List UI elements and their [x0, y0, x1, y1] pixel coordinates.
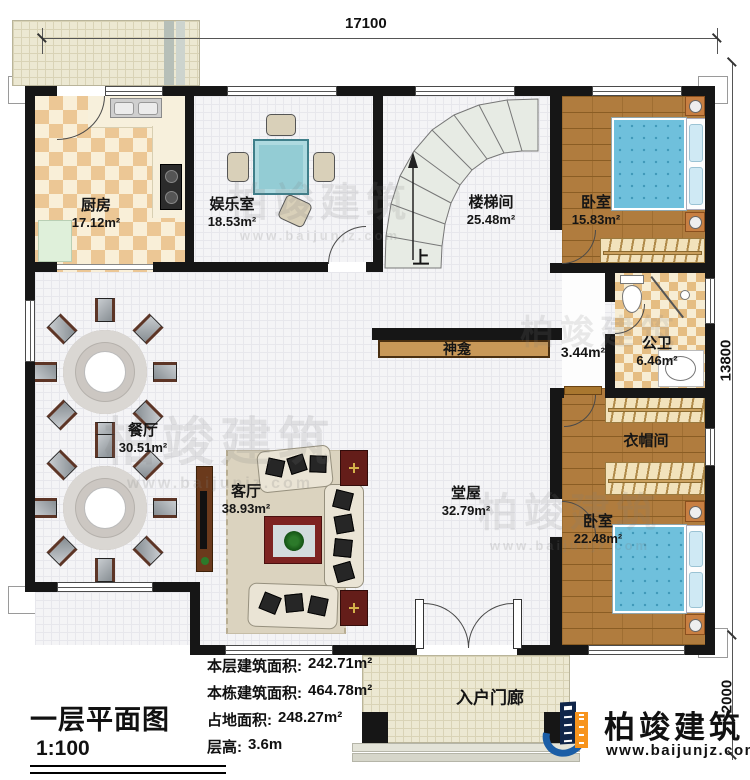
bed: [612, 118, 686, 210]
room-corridor-floor: [562, 273, 605, 388]
sink-basin: [114, 102, 134, 115]
dining-table: [63, 466, 147, 550]
terrace-strip: [164, 21, 174, 85]
side-table: [340, 450, 368, 486]
wall: [605, 334, 615, 390]
recreation-label: 娱乐室 18.53m²: [208, 193, 256, 229]
pillow: [689, 124, 703, 162]
shrine-label: 神龛: [443, 339, 471, 359]
door-opening: [57, 86, 105, 96]
stairwell-label: 楼梯间 25.48m²: [467, 191, 515, 227]
drawing-scale: 1:100: [36, 737, 90, 760]
room-name: 卧室: [574, 510, 622, 531]
nightstand: [685, 212, 705, 232]
dining-table: [63, 330, 147, 414]
bathroom-label: 公卫 6.46m²: [636, 332, 677, 368]
room-name: 入户门廊: [456, 684, 524, 709]
sofa: [324, 484, 364, 588]
room-name: 堂屋: [442, 482, 490, 503]
sofa-cushion: [333, 561, 355, 583]
sofa-cushion: [284, 593, 304, 613]
window: [225, 645, 333, 655]
room-name: 卧室: [572, 191, 620, 212]
sofa-cushion: [333, 538, 353, 558]
tv: [200, 491, 207, 549]
room-area: 3.44m²: [561, 344, 605, 360]
stat-footprint: 占地面积: 248.27m²: [207, 709, 372, 730]
wall: [550, 537, 562, 645]
logo-icon: [542, 700, 600, 760]
wall: [185, 262, 328, 272]
burner: [165, 170, 178, 183]
side-table: [340, 590, 368, 626]
wardrobe: [600, 238, 705, 263]
page-title: 一层平面图: [30, 705, 170, 735]
room-name: 厨房: [72, 194, 120, 215]
window: [57, 582, 153, 592]
sofa-cushion: [286, 454, 307, 475]
stat-building-area: 本栋建筑面积: 464.78m²: [207, 682, 372, 703]
window: [227, 86, 337, 96]
room-area: 22.48m²: [574, 531, 622, 546]
room-area: 15.83m²: [572, 212, 620, 227]
plant: [284, 531, 304, 551]
bed-headboard: [686, 118, 706, 210]
dining-label: 餐厅 30.51m²: [119, 419, 167, 455]
room-name: 娱乐室: [208, 193, 256, 214]
cloakroom-label: 衣帽间: [623, 430, 668, 451]
chair: [95, 558, 115, 582]
room-area: 30.51m²: [119, 440, 167, 455]
nightstand: [685, 614, 705, 635]
stat-label: 本层建筑面积:: [207, 655, 302, 676]
brand-logo: 柏竣建筑 www.baijunjz.com: [542, 700, 742, 764]
room-area: 32.79m²: [442, 503, 490, 518]
shower-head: [680, 290, 690, 300]
room-area: 6.46m²: [636, 353, 677, 368]
stat-label: 层高:: [207, 736, 242, 757]
pillow: [689, 572, 703, 608]
brand-name: 柏竣建筑: [604, 702, 744, 747]
wall: [550, 263, 612, 273]
floor-plan: 柏竣建筑 www.baijunjz.com 柏竣建筑 www.baijunjz.…: [0, 0, 750, 780]
direction-text: 上: [413, 244, 430, 269]
wall: [605, 273, 615, 302]
bedroom1-label: 卧室 15.83m²: [572, 191, 620, 227]
dimension-line: [42, 38, 718, 39]
living-label: 客厅 38.93m²: [222, 480, 270, 516]
wall: [185, 96, 194, 272]
wall-opening: [57, 264, 153, 270]
nightstand: [685, 501, 705, 522]
sofa-cushion: [309, 455, 327, 473]
stat-value: 464.78m²: [308, 682, 372, 703]
stat-height: 层高: 3.6m: [207, 736, 372, 757]
window: [25, 300, 35, 362]
staircase: [383, 96, 550, 272]
room-name: 神龛: [443, 339, 471, 359]
stat-value: 248.27m²: [278, 709, 342, 730]
room-name: 楼梯间: [467, 191, 515, 212]
sofa-cushion: [258, 591, 281, 614]
stair-up-label: 上: [413, 244, 430, 269]
window: [105, 86, 163, 96]
wall: [550, 388, 562, 499]
room-area: 17.12m²: [72, 215, 120, 230]
sofa-cushion: [332, 489, 354, 511]
terrace-strip: [176, 21, 185, 85]
room-name: 衣帽间: [623, 430, 668, 451]
chair: [227, 152, 249, 182]
logo-building-dark: [560, 701, 576, 744]
stat-value: 242.71m²: [308, 655, 372, 676]
pillow: [689, 531, 703, 567]
stove: [160, 164, 182, 210]
hall-label: 堂屋 32.79m²: [442, 482, 490, 518]
wall: [375, 645, 417, 655]
logo-building-orange: [575, 712, 588, 748]
window: [705, 428, 715, 466]
fridge: [38, 220, 72, 262]
bed-headboard: [686, 525, 706, 613]
stat-floor-area: 本层建筑面积: 242.71m²: [207, 655, 372, 676]
burner: [165, 191, 178, 204]
kitchen-label: 厨房 17.12m²: [72, 194, 120, 230]
coffee-table: [264, 516, 322, 564]
wall: [373, 96, 383, 272]
wall: [612, 263, 715, 273]
door-leaf: [564, 386, 602, 395]
wall: [153, 262, 185, 272]
wall: [35, 262, 57, 272]
pillow: [689, 167, 703, 205]
wardrobe: [605, 462, 705, 495]
plant: [201, 557, 209, 565]
chair: [33, 362, 57, 382]
window: [705, 278, 715, 324]
room-name: 公卫: [636, 332, 677, 353]
title-underline: [30, 765, 226, 774]
sofa-cushion: [307, 595, 328, 616]
dimension-ext: [717, 28, 718, 54]
chair: [33, 498, 57, 518]
wall: [705, 96, 715, 655]
dimension-ext: [42, 28, 43, 54]
dimension-top: 17100: [345, 15, 387, 32]
stat-label: 本栋建筑面积:: [207, 682, 302, 703]
stats-block: 本层建筑面积: 242.71m² 本栋建筑面积: 464.78m² 占地面积: …: [207, 655, 372, 757]
tv-cabinet: [196, 466, 213, 572]
chair: [153, 498, 177, 518]
bedroom2-label: 卧室 22.48m²: [574, 510, 622, 546]
window: [415, 86, 515, 96]
window: [592, 86, 682, 96]
bed: [613, 525, 686, 613]
door-leaf: [415, 599, 424, 649]
chair: [313, 152, 335, 182]
room-name: 餐厅: [119, 419, 167, 440]
chair: [95, 298, 115, 322]
chair: [153, 362, 177, 382]
brand-website: www.baijunjz.com: [606, 742, 750, 759]
stat-label: 占地面积:: [207, 709, 272, 730]
wall: [605, 388, 715, 398]
chair: [95, 434, 115, 458]
corridor-label: 3.44m²: [561, 344, 605, 360]
sofa: [247, 582, 338, 629]
room-area: 38.93m²: [222, 501, 270, 516]
room-area: 25.48m²: [467, 212, 515, 227]
game-table: [253, 139, 309, 195]
chair: [266, 114, 296, 136]
sink-basin: [138, 102, 158, 115]
window: [588, 645, 685, 655]
room-area: 18.53m²: [208, 214, 256, 229]
title-block: 一层平面图 1:100: [30, 698, 230, 774]
stat-value: 3.6m: [248, 736, 282, 757]
porch-label: 入户门廊: [456, 684, 524, 709]
kitchen-sink: [110, 98, 162, 118]
nightstand: [685, 96, 705, 116]
sofa-cushion: [334, 514, 355, 535]
wall: [550, 96, 562, 230]
room-name: 客厅: [222, 480, 270, 501]
dimension-right: 13800: [718, 339, 735, 383]
toilet-tank: [620, 275, 644, 284]
door-leaf: [513, 599, 522, 649]
sofa-cushion: [265, 457, 285, 477]
